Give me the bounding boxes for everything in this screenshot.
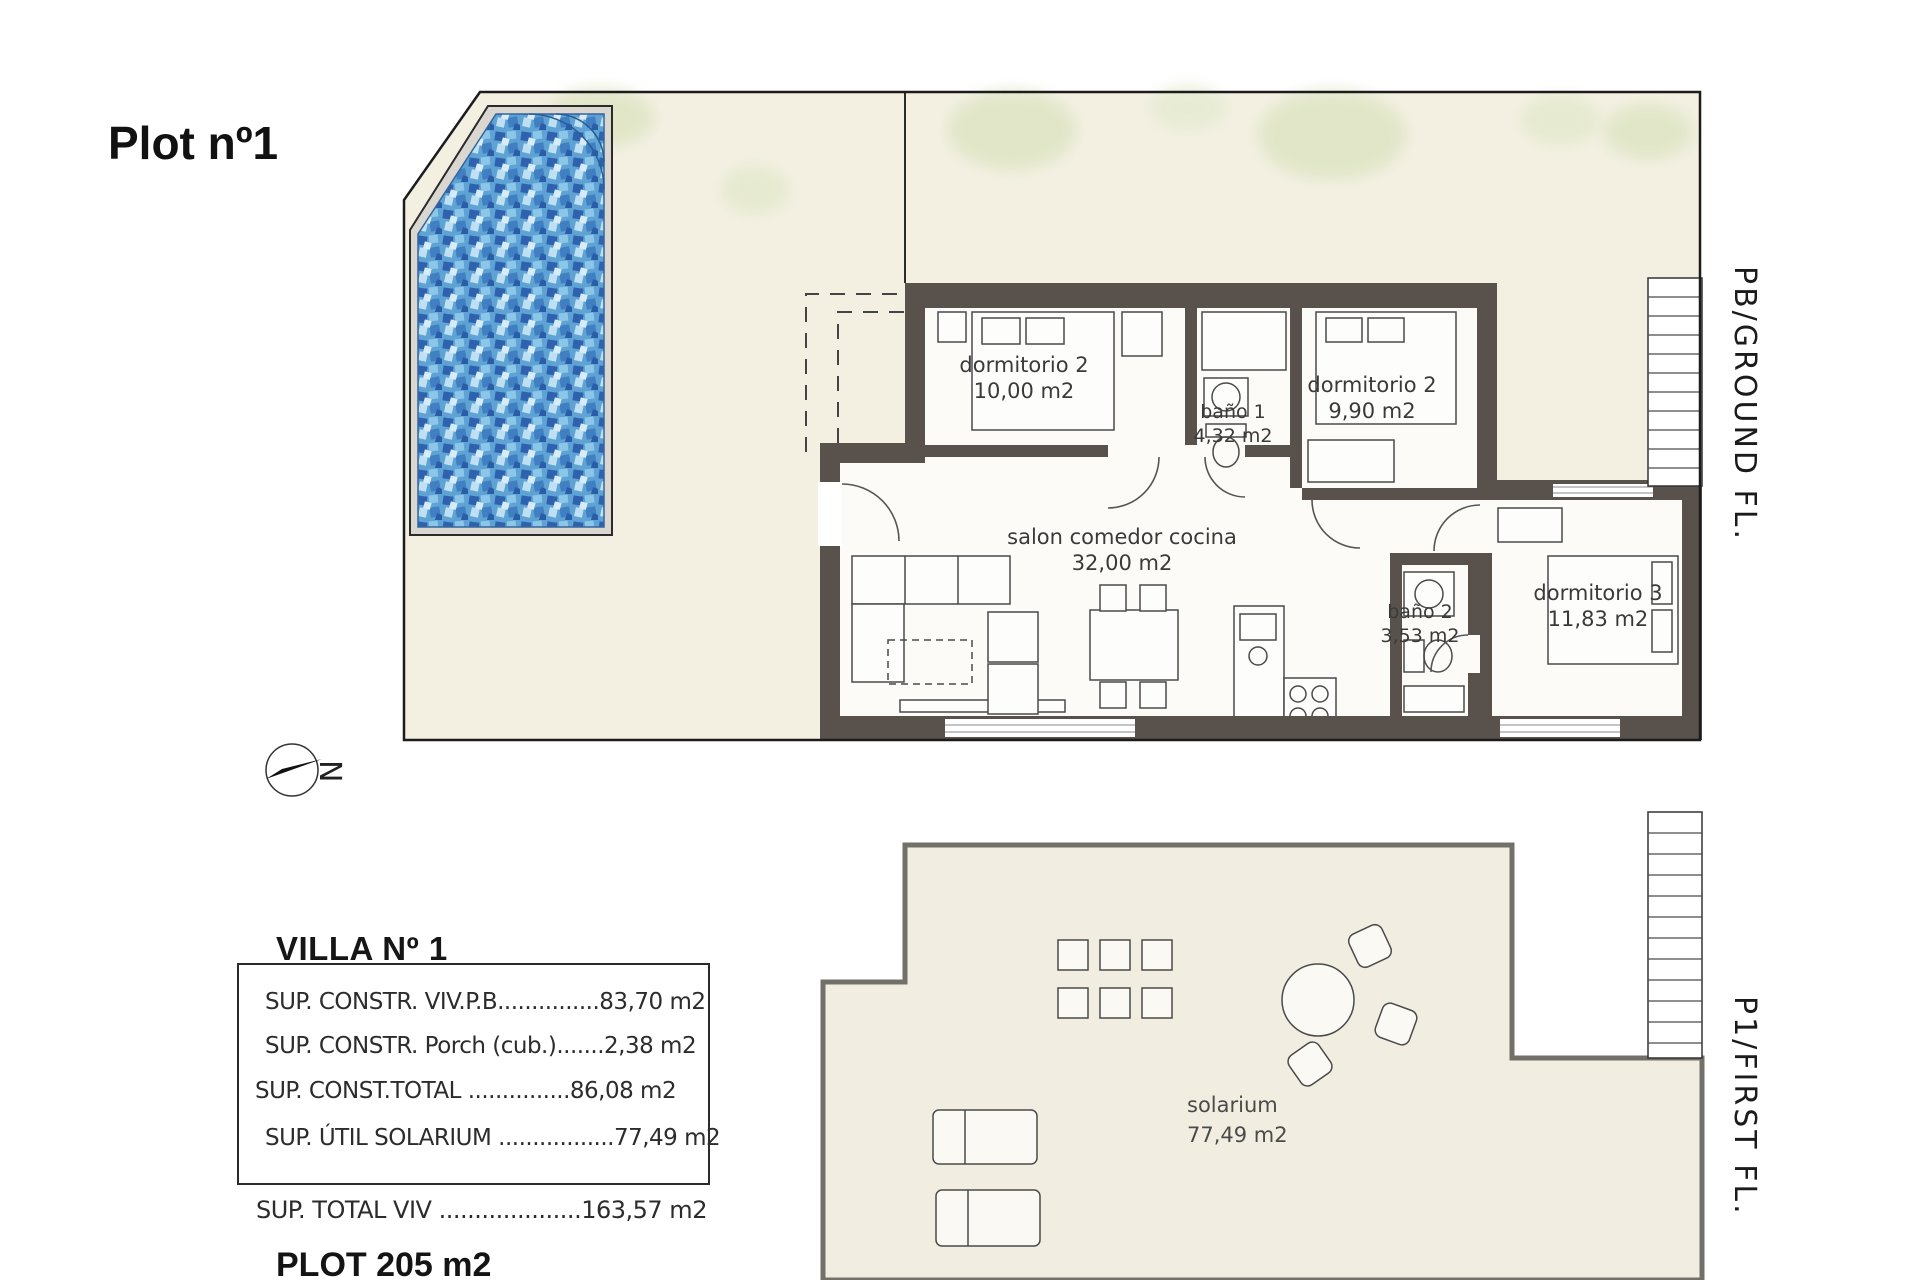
row-leader: .......	[556, 1033, 604, 1059]
row-value: 77,49 m2	[614, 1125, 720, 1151]
room-area: 4,32 m2	[1194, 424, 1273, 448]
room-area: 10,00 m2	[959, 378, 1088, 404]
room-name: baño 1	[1194, 400, 1273, 424]
staircase-first	[1648, 812, 1702, 1058]
row-label: SUP. CONSTR. Porch (cub.)	[265, 1033, 556, 1059]
plot-size-line: PLOT 205 m2	[276, 1246, 491, 1280]
room-label-dormitorio2-left: dormitorio 2 10,00 m2	[959, 352, 1088, 404]
room-label-solarium: solarium 77,49 m2	[1187, 1090, 1288, 1150]
room-label-dormitorio3: dormitorio 3 11,83 m2	[1533, 580, 1662, 632]
row-leader: ...............	[497, 989, 599, 1015]
ground-floor-side-label: PB/GROUND FL.	[1727, 266, 1762, 542]
row-label: SUP. CONST.TOTAL	[255, 1078, 461, 1104]
summary-row: SUP. ÚTIL SOLARIUM .................77,4…	[265, 1125, 720, 1151]
room-area: 3,53 m2	[1381, 624, 1460, 648]
row-leader: .................	[491, 1125, 614, 1151]
room-label-salon: salon comedor cocina 32,00 m2	[1007, 524, 1237, 576]
room-name: dormitorio 3	[1533, 580, 1662, 606]
room-label-bano2: baño 2 3,53 m2	[1381, 600, 1460, 648]
surface-summary-box: SUP. CONSTR. VIV.P.B...............83,70…	[237, 963, 710, 1185]
room-label-dormitorio2-right: dormitorio 2 9,90 m2	[1307, 372, 1436, 424]
row-label: SUP. CONSTR. VIV.P.B	[265, 989, 497, 1015]
room-name: baño 2	[1381, 600, 1460, 624]
row-value: 2,38 m2	[604, 1033, 696, 1059]
summary-row: SUP. CONST.TOTAL ...............86,08 m2	[255, 1078, 676, 1104]
room-name: dormitorio 2	[1307, 372, 1436, 398]
row-value: 86,08 m2	[570, 1078, 676, 1104]
first-floor-side-label: P1/FIRST FL.	[1727, 996, 1762, 1217]
compass-letter: N	[312, 760, 347, 782]
row-label: SUP. TOTAL VIV	[256, 1196, 431, 1224]
ground-floor-plan: N	[266, 86, 1702, 796]
north-compass: N	[266, 744, 347, 796]
row-value: 163,57 m2	[581, 1196, 707, 1224]
room-name: salon comedor cocina	[1007, 524, 1237, 550]
first-floor-plan	[823, 812, 1702, 1280]
summary-row: SUP. CONSTR. Porch (cub.).......2,38 m2	[265, 1033, 696, 1059]
room-name: dormitorio 2	[959, 352, 1088, 378]
page-title: Plot nº1	[108, 116, 278, 170]
room-label-bano1: baño 1 4,32 m2	[1194, 400, 1273, 448]
room-name: solarium	[1187, 1090, 1288, 1120]
row-value: 83,70 m2	[599, 989, 705, 1015]
row-label: SUP. ÚTIL SOLARIUM	[265, 1125, 491, 1151]
room-area: 77,49 m2	[1187, 1120, 1288, 1150]
floorplan-page: N	[0, 0, 1920, 1280]
room-area: 11,83 m2	[1533, 606, 1662, 632]
summary-row: SUP. CONSTR. VIV.P.B...............83,70…	[265, 989, 706, 1015]
row-leader: ....................	[431, 1196, 581, 1224]
room-area: 32,00 m2	[1007, 550, 1237, 576]
room-area: 9,90 m2	[1307, 398, 1436, 424]
summary-total-row: SUP. TOTAL VIV ....................163,5…	[256, 1196, 707, 1224]
staircase-ground	[1648, 278, 1702, 486]
row-leader: ...............	[461, 1078, 570, 1104]
